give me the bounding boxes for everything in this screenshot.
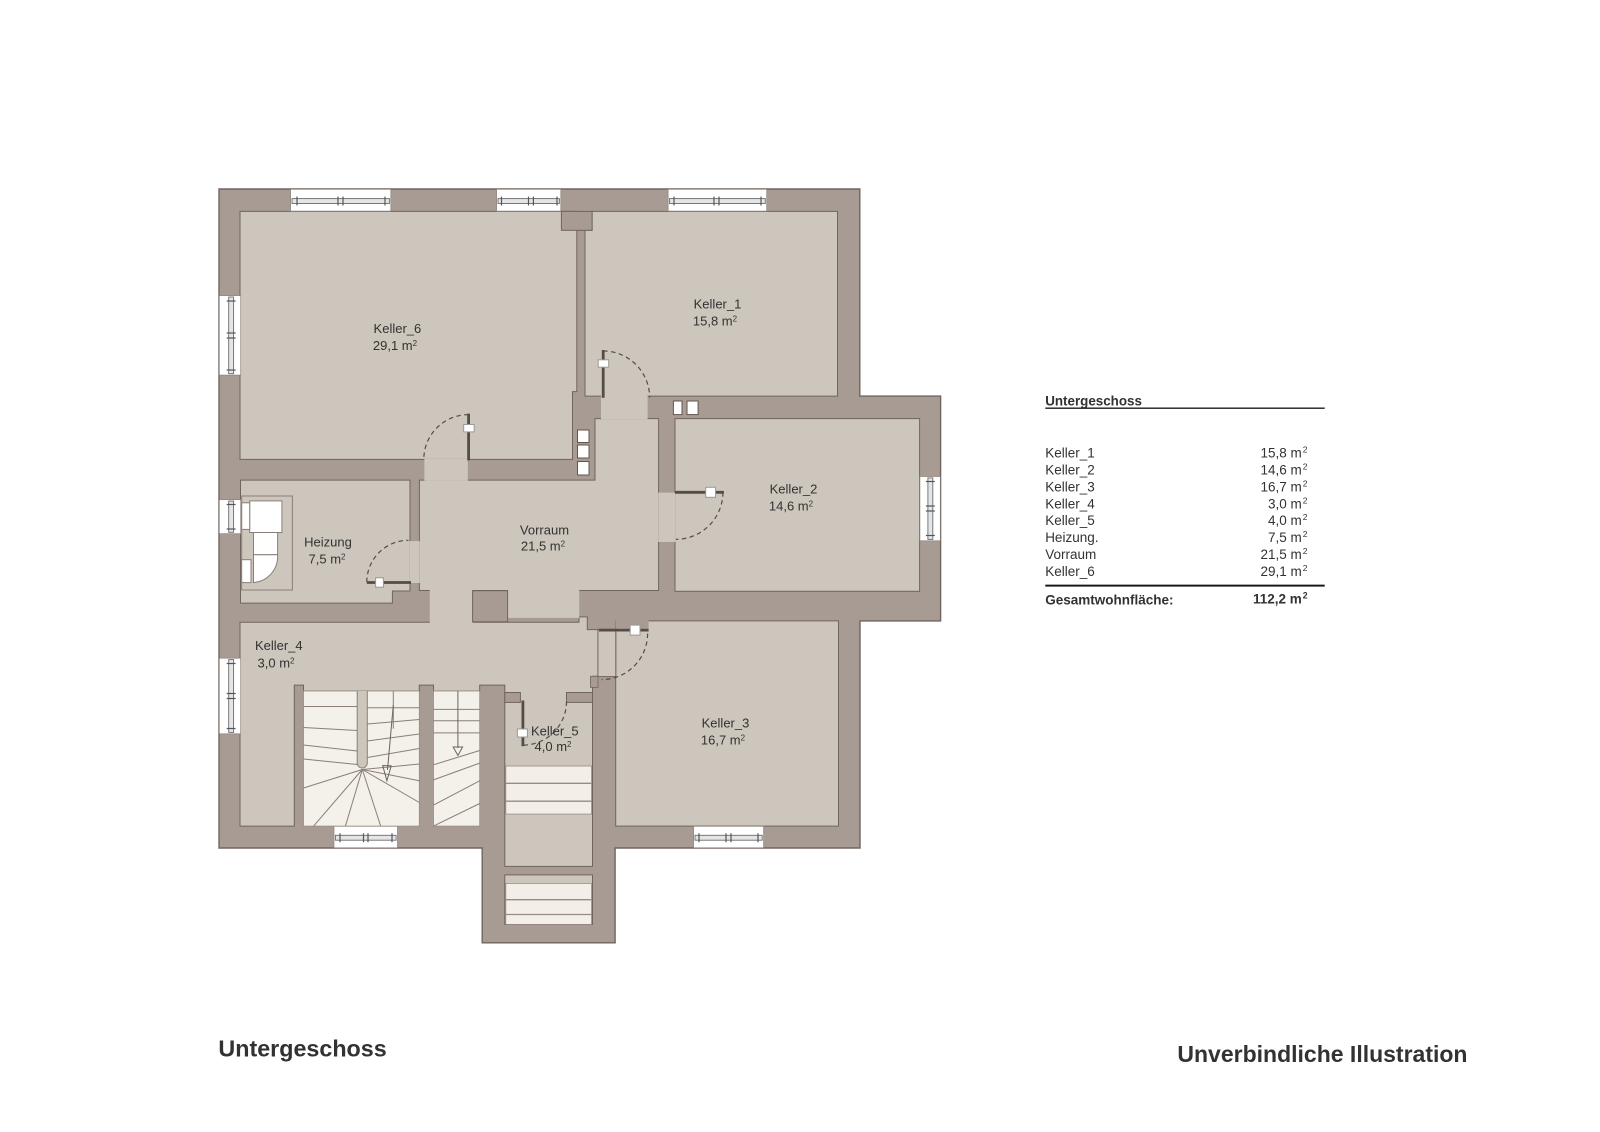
svg-text:Keller_4: Keller_4 [255, 638, 303, 653]
svg-text:2: 2 [1303, 461, 1308, 471]
svg-text:4,0 m2: 4,0 m2 [535, 739, 573, 754]
svg-text:21,5 m: 21,5 m [1261, 547, 1302, 562]
svg-text:7,5 m2: 7,5 m2 [309, 551, 347, 566]
svg-text:Keller_2: Keller_2 [1045, 462, 1095, 477]
svg-text:14,6 m: 14,6 m [1261, 462, 1302, 477]
svg-text:Vorraum: Vorraum [1045, 547, 1096, 562]
svg-text:Keller_5: Keller_5 [531, 724, 579, 739]
svg-text:Keller_1: Keller_1 [1045, 445, 1095, 460]
svg-text:2: 2 [1303, 478, 1308, 488]
svg-text:16,7 m2: 16,7 m2 [701, 733, 746, 748]
svg-text:15,8 m2: 15,8 m2 [693, 313, 738, 328]
svg-text:Keller_3: Keller_3 [1045, 479, 1095, 494]
svg-text:Keller_6: Keller_6 [374, 321, 422, 336]
svg-text:Keller_3: Keller_3 [702, 716, 750, 731]
svg-text:Gesamtwohnfläche:: Gesamtwohnfläche: [1045, 592, 1173, 607]
svg-text:21,5 m2: 21,5 m2 [521, 539, 566, 554]
svg-text:Keller_2: Keller_2 [770, 482, 818, 497]
svg-text:16,7 m: 16,7 m [1261, 479, 1302, 494]
svg-text:Vorraum: Vorraum [520, 523, 569, 538]
svg-text:2: 2 [1303, 563, 1308, 573]
svg-text:2: 2 [1303, 546, 1308, 556]
svg-text:Untergeschoss: Untergeschoss [1045, 394, 1142, 409]
svg-text:2: 2 [1303, 590, 1308, 600]
svg-text:3,0 m: 3,0 m [1268, 496, 1302, 511]
svg-text:4,0 m: 4,0 m [1268, 513, 1302, 528]
svg-text:Unverbindliche Illustration: Unverbindliche Illustration [1177, 1041, 1467, 1067]
svg-text:29,1 m: 29,1 m [1261, 564, 1302, 579]
svg-text:29,1 m2: 29,1 m2 [373, 338, 418, 353]
svg-text:Keller_6: Keller_6 [1045, 564, 1095, 579]
svg-text:Keller_5: Keller_5 [1045, 513, 1095, 528]
svg-text:7,5 m: 7,5 m [1268, 530, 1302, 545]
svg-text:Heizung: Heizung [304, 535, 352, 550]
svg-text:14,6 m2: 14,6 m2 [769, 498, 814, 513]
svg-text:Keller_4: Keller_4 [1045, 496, 1095, 511]
svg-text:2: 2 [1303, 444, 1308, 454]
svg-text:2: 2 [1303, 512, 1308, 522]
svg-text:Heizung.: Heizung. [1045, 530, 1098, 545]
svg-text:15,8 m: 15,8 m [1261, 445, 1302, 460]
svg-text:3,0 m2: 3,0 m2 [258, 655, 296, 670]
svg-text:Keller_1: Keller_1 [694, 297, 742, 312]
svg-text:Untergeschoss: Untergeschoss [218, 1036, 386, 1062]
svg-text:2: 2 [1303, 529, 1308, 539]
svg-text:2: 2 [1303, 495, 1308, 505]
svg-text:112,2 m: 112,2 m [1253, 592, 1302, 607]
